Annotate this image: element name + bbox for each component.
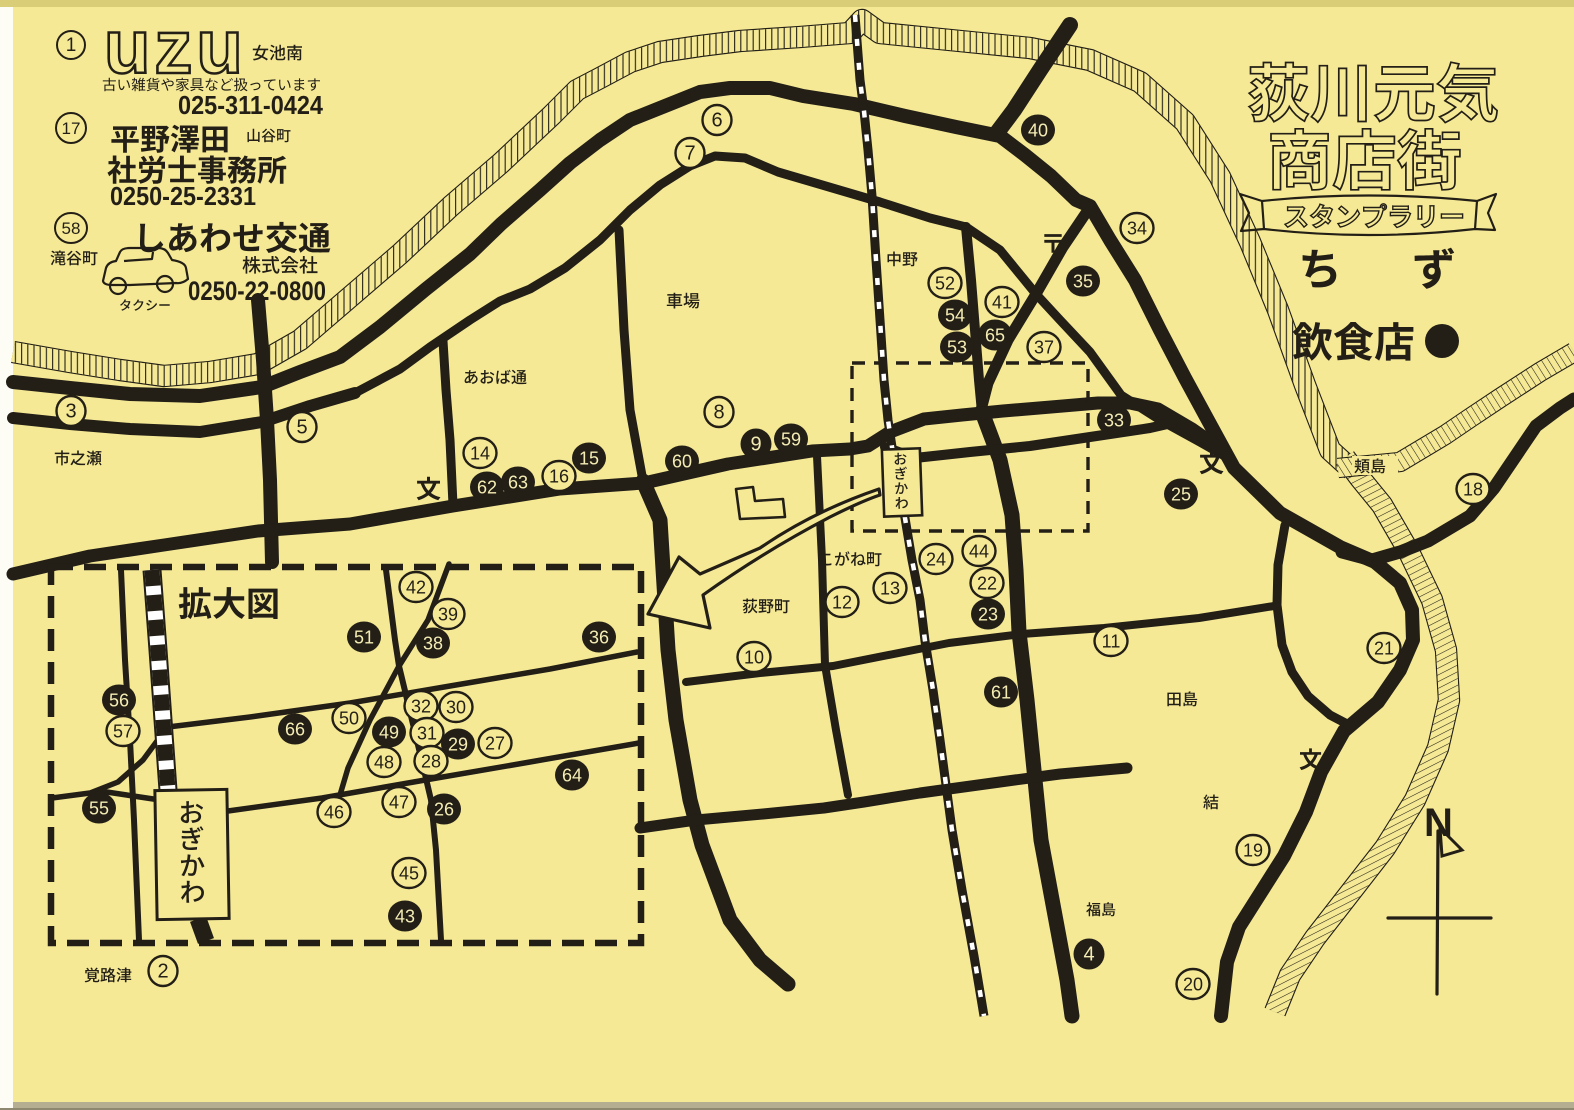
svg-text:41: 41 <box>992 293 1012 313</box>
svg-text:46: 46 <box>324 803 344 823</box>
svg-text:3: 3 <box>65 401 76 423</box>
svg-text:60: 60 <box>672 452 692 472</box>
svg-text:0250-25-2331: 0250-25-2331 <box>110 181 256 211</box>
svg-text:15: 15 <box>579 449 599 469</box>
svg-text:31: 31 <box>417 724 437 744</box>
svg-text:20: 20 <box>1183 975 1203 995</box>
svg-text:19: 19 <box>1243 841 1263 861</box>
svg-text:32: 32 <box>411 697 431 717</box>
svg-text:62: 62 <box>477 478 497 498</box>
svg-text:9: 9 <box>750 434 761 456</box>
svg-text:33: 33 <box>1104 411 1124 431</box>
svg-text:28: 28 <box>421 752 441 772</box>
svg-text:25: 25 <box>1171 485 1191 505</box>
svg-text:59: 59 <box>781 430 801 450</box>
svg-text:27: 27 <box>485 734 505 754</box>
svg-text:39: 39 <box>438 605 458 625</box>
svg-text:54: 54 <box>945 306 965 326</box>
svg-text:29: 29 <box>448 735 468 755</box>
svg-text:6: 6 <box>711 110 722 132</box>
svg-text:52: 52 <box>935 274 955 294</box>
svg-text:12: 12 <box>832 593 852 613</box>
svg-text:44: 44 <box>969 542 989 562</box>
svg-text:58: 58 <box>62 219 81 238</box>
svg-text:42: 42 <box>406 578 426 598</box>
svg-text:47: 47 <box>389 793 409 813</box>
svg-text:57: 57 <box>113 722 133 742</box>
svg-text:8: 8 <box>713 402 724 424</box>
svg-text:61: 61 <box>991 683 1011 703</box>
svg-text:4: 4 <box>1083 944 1094 966</box>
svg-text:66: 66 <box>285 720 305 740</box>
svg-text:24: 24 <box>926 550 946 570</box>
svg-text:55: 55 <box>89 799 109 819</box>
svg-text:65: 65 <box>985 326 1005 346</box>
svg-text:21: 21 <box>1374 639 1394 659</box>
svg-text:56: 56 <box>109 691 129 711</box>
svg-text:38: 38 <box>423 634 443 654</box>
svg-text:14: 14 <box>470 444 490 464</box>
svg-text:30: 30 <box>446 698 466 718</box>
svg-text:uzu: uzu <box>104 5 247 90</box>
svg-text:35: 35 <box>1073 272 1093 292</box>
svg-text:49: 49 <box>379 723 399 743</box>
svg-text:40: 40 <box>1028 121 1048 141</box>
svg-text:51: 51 <box>354 628 374 648</box>
svg-text:11: 11 <box>1102 632 1121 652</box>
svg-text:2: 2 <box>157 961 168 983</box>
svg-text:37: 37 <box>1034 338 1054 358</box>
svg-text:025-311-0424: 025-311-0424 <box>178 90 323 120</box>
svg-text:34: 34 <box>1127 219 1147 239</box>
svg-text:45: 45 <box>399 864 419 884</box>
svg-text:43: 43 <box>395 907 415 927</box>
svg-text:53: 53 <box>947 338 967 358</box>
svg-text:10: 10 <box>744 648 764 668</box>
svg-text:50: 50 <box>339 709 359 729</box>
svg-text:0250-22-0800: 0250-22-0800 <box>188 276 326 306</box>
svg-text:23: 23 <box>978 605 998 625</box>
svg-text:5: 5 <box>296 417 307 439</box>
svg-text:26: 26 <box>434 800 454 820</box>
svg-text:36: 36 <box>589 628 609 648</box>
svg-text:7: 7 <box>684 143 695 165</box>
svg-text:18: 18 <box>1463 480 1483 500</box>
svg-text:17: 17 <box>62 119 81 138</box>
svg-text:13: 13 <box>880 579 900 599</box>
svg-text:64: 64 <box>562 766 582 786</box>
svg-text:22: 22 <box>977 574 997 594</box>
svg-text:16: 16 <box>549 467 569 487</box>
svg-text:63: 63 <box>508 473 528 493</box>
svg-text:1: 1 <box>66 35 77 56</box>
svg-text:48: 48 <box>374 753 394 773</box>
